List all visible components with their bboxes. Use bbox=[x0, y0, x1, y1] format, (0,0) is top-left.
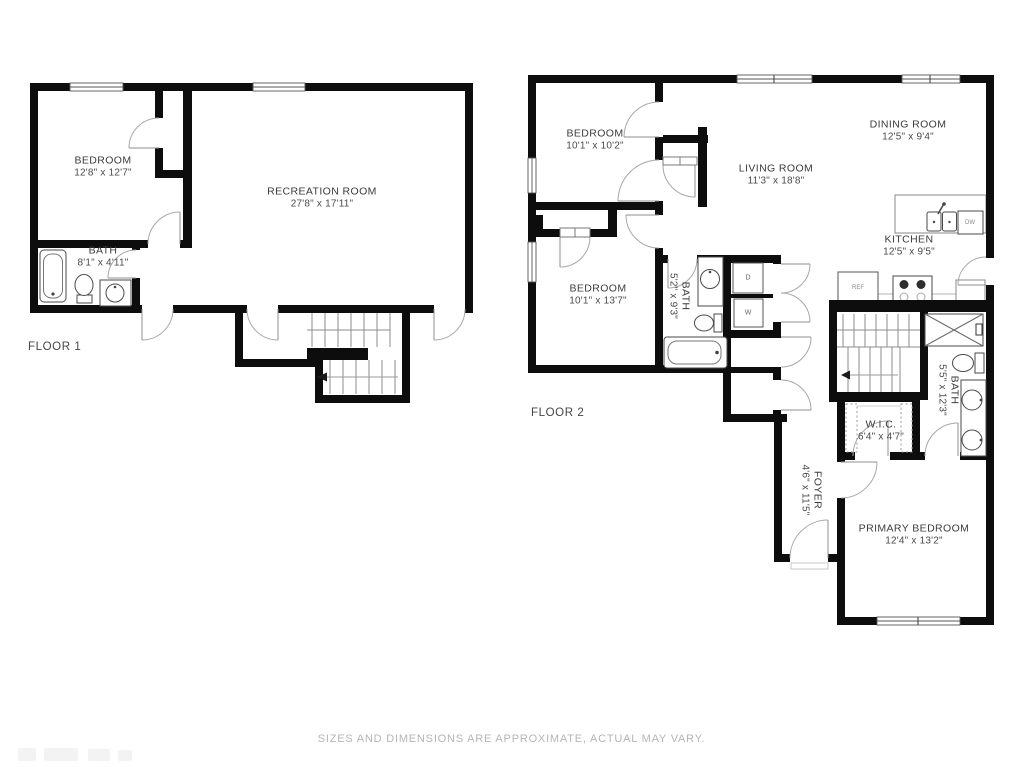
room-label-foyer: FOYER 4'6" x 11'5" bbox=[799, 465, 824, 516]
disclaimer-text: SIZES AND DIMENSIONS ARE APPROXIMATE, AC… bbox=[0, 733, 1023, 745]
room-label-bath-f1: BATH 8'1" x 4'11" bbox=[78, 245, 129, 270]
room-label-bedroom2-f2: BEDROOM 10'1" x 13'7" bbox=[569, 283, 626, 308]
floor1-label: FLOOR 1 bbox=[28, 341, 81, 353]
ref-label: REF bbox=[852, 285, 864, 291]
floor1-walls bbox=[30, 83, 473, 403]
room-label-wic: W.I.C. 6'4" x 4'7" bbox=[858, 419, 904, 444]
shower-icon bbox=[925, 314, 983, 346]
room-label-bath1: BATH 5'2" x 9'3" bbox=[667, 273, 692, 319]
bathtub-icon bbox=[40, 250, 66, 302]
floor2-stairs bbox=[837, 314, 920, 392]
room-label-living: LIVING ROOM 11'3" x 18'8" bbox=[739, 163, 813, 188]
room-label-recreation: RECREATION ROOM 27'8" x 17'11" bbox=[267, 186, 377, 211]
linen-closet-door bbox=[663, 157, 697, 165]
toilet-icon bbox=[75, 275, 93, 304]
room-label-primary: PRIMARY BEDROOM 12'4" x 13'2" bbox=[859, 523, 970, 548]
toilet-icon bbox=[695, 314, 723, 332]
room-label-dining: DINING ROOM 12'5" x 9'4" bbox=[870, 119, 947, 144]
room-label-bedroom1-f2: BEDROOM 10'1" x 10'2" bbox=[566, 128, 623, 153]
bedroom2-closet-door bbox=[560, 228, 590, 237]
room-label-bath2: BATH 5'5" x 12'3" bbox=[936, 364, 961, 416]
sink-vanity-icon bbox=[100, 280, 131, 306]
dw-label: DW bbox=[965, 220, 975, 226]
bathtub-icon bbox=[664, 337, 727, 368]
double-sink-vanity-icon bbox=[961, 380, 986, 456]
floorplan-page: BEDROOM 12'8" x 12'7" RECREATION ROOM 27… bbox=[0, 0, 1023, 767]
room-label-kitchen: KITCHEN 12'5" x 9'5" bbox=[883, 234, 935, 259]
floor2-label: FLOOR 2 bbox=[531, 407, 584, 419]
entry-stoop bbox=[791, 563, 828, 569]
sink-vanity-icon bbox=[698, 257, 723, 306]
washer-label: W bbox=[745, 310, 752, 317]
room-label-bedroom-f1: BEDROOM 12'8" x 12'7" bbox=[74, 155, 131, 180]
floor1-door-gaps bbox=[132, 118, 465, 313]
floor1-plan bbox=[30, 83, 473, 403]
stove-icon bbox=[893, 276, 932, 303]
floorplan-drawing bbox=[0, 0, 1023, 767]
closet-doors bbox=[560, 157, 697, 237]
stair-direction-arrow-icon bbox=[841, 371, 850, 380]
dryer-label: D bbox=[745, 275, 750, 282]
